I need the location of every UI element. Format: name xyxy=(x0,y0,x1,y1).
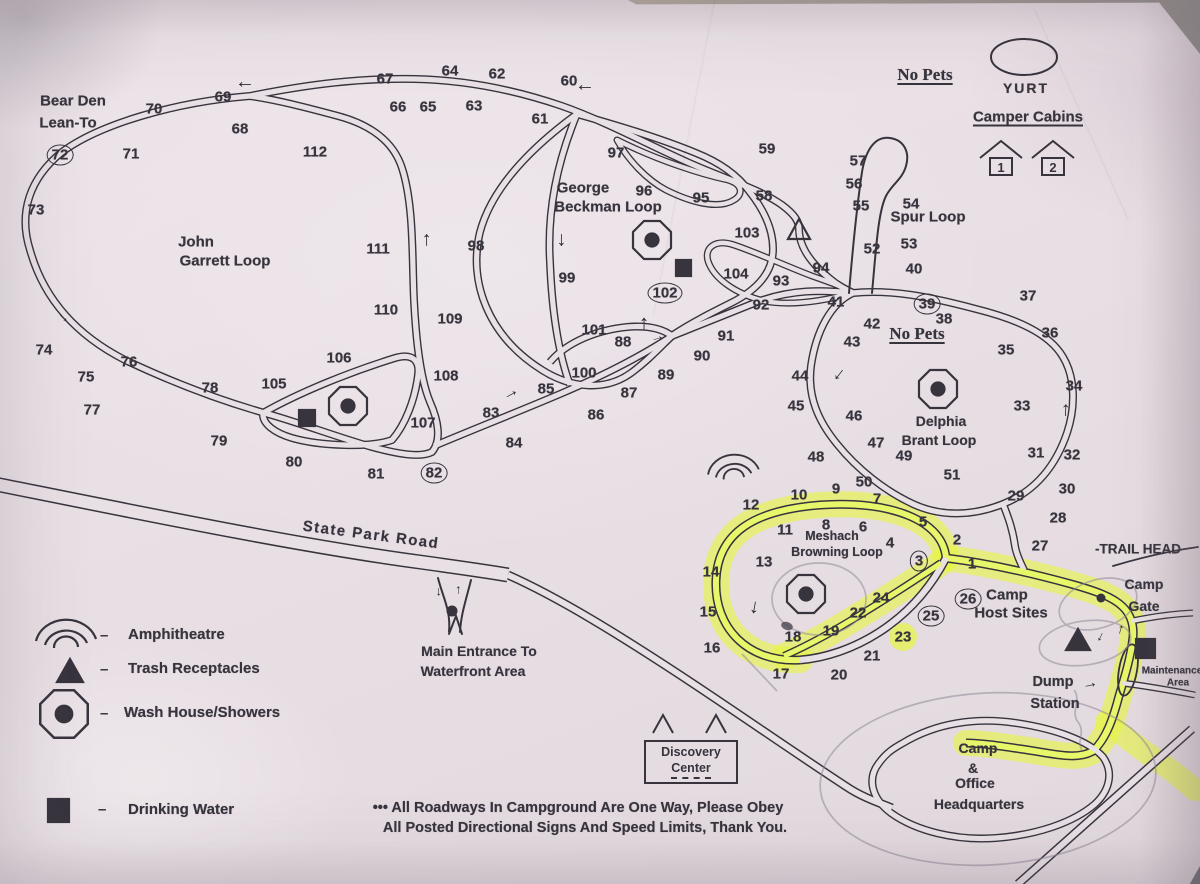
site-number: 7 xyxy=(873,491,881,508)
legend-dash: – xyxy=(100,661,108,678)
site-number: 81 xyxy=(368,466,385,483)
site-number: 40 xyxy=(906,261,923,278)
site-number: 76 xyxy=(121,354,138,371)
site-number: 63 xyxy=(466,98,483,115)
site-number: 2 xyxy=(953,532,961,549)
site-number: 86 xyxy=(588,407,605,424)
label-no-pets-north: No Pets xyxy=(897,65,952,85)
site-number: 34 xyxy=(1066,378,1083,395)
site-number: 46 xyxy=(846,408,863,425)
site-number: 62 xyxy=(489,66,506,83)
site-number: 45 xyxy=(788,398,805,415)
site-number-circled: 25 xyxy=(918,606,945,627)
site-number: 103 xyxy=(734,225,759,242)
site-number: 10 xyxy=(791,487,808,504)
site-number: 31 xyxy=(1028,445,1045,462)
site-number: 104 xyxy=(723,266,748,283)
direction-arrow: → xyxy=(745,596,768,619)
site-number: 53 xyxy=(901,236,918,253)
site-number: 68 xyxy=(232,121,249,138)
site-number: 21 xyxy=(864,648,881,665)
direction-arrow: → xyxy=(414,230,434,250)
site-number: 33 xyxy=(1014,398,1031,415)
site-number: 18 xyxy=(785,629,802,646)
site-number: 23 xyxy=(895,629,912,646)
site-number: 89 xyxy=(658,367,675,384)
legend-label-trash: Trash Receptacles xyxy=(128,660,260,677)
site-number-circled: 82 xyxy=(421,463,448,484)
site-number: 95 xyxy=(693,190,710,207)
site-number: 79 xyxy=(211,433,228,450)
direction-arrow: → xyxy=(1081,675,1100,694)
discovery-center-label-2: Center xyxy=(671,761,711,780)
label-john-garrett-2: Garrett Loop xyxy=(180,253,271,270)
site-number: 64 xyxy=(442,63,459,80)
site-number: 56 xyxy=(846,176,863,193)
site-number: 96 xyxy=(636,183,653,200)
label-trail-head: -TRAIL HEAD xyxy=(1095,542,1181,557)
label-bear-den-1: Bear Den xyxy=(40,93,106,110)
site-number: 19 xyxy=(823,623,840,640)
site-number: 4 xyxy=(886,535,894,552)
label-spur-loop: Spur Loop xyxy=(891,209,966,226)
site-number: 106 xyxy=(326,350,351,367)
site-number: 107 xyxy=(410,415,435,432)
site-number: 73 xyxy=(28,202,45,219)
legend-dash: – xyxy=(98,801,106,818)
label-yurt: YURT xyxy=(1003,80,1049,96)
site-number: 41 xyxy=(828,294,845,311)
direction-arrow: → xyxy=(554,230,574,250)
label-camp-gate-2: Gate xyxy=(1128,598,1159,614)
label-no-pets-delphia: No Pets xyxy=(889,324,944,344)
site-number: 6 xyxy=(859,519,867,536)
site-number: 88 xyxy=(615,334,632,351)
photo-background: 1 2 xyxy=(0,0,1200,884)
site-number: 59 xyxy=(759,141,776,158)
label-dump-1: Dump xyxy=(1032,674,1073,690)
site-number: 78 xyxy=(202,380,219,397)
site-number: 22 xyxy=(850,605,867,622)
label-george-beckman-1: George xyxy=(557,180,610,197)
direction-arrow: → xyxy=(648,327,665,344)
site-number: 90 xyxy=(694,348,711,365)
legend-label-wash-house: Wash House/Showers xyxy=(124,704,280,721)
direction-arrow: → xyxy=(828,363,855,390)
site-number: 105 xyxy=(261,376,286,393)
site-number: 52 xyxy=(864,241,881,258)
discovery-center: Discovery Center xyxy=(644,740,738,784)
site-number: 51 xyxy=(944,467,961,484)
direction-arrow: → xyxy=(1053,400,1074,421)
site-number: 29 xyxy=(1008,488,1025,505)
site-number: 49 xyxy=(896,448,913,465)
site-number: 110 xyxy=(374,302,398,319)
label-camp-host-2: Host Sites xyxy=(974,605,1047,622)
site-number: 91 xyxy=(718,328,735,345)
label-john-garrett-1: John xyxy=(178,234,214,251)
site-number: 1 xyxy=(968,556,976,573)
site-number: 35 xyxy=(998,342,1015,359)
direction-arrow: → xyxy=(575,80,595,100)
label-bear-den-2: Lean-To xyxy=(39,115,96,132)
label-state-park-road: State Park Road xyxy=(302,518,441,553)
label-main-entrance-2: Waterfront Area xyxy=(421,663,526,679)
site-number: 37 xyxy=(1020,288,1037,305)
direction-arrow: → xyxy=(55,306,75,326)
site-number: 30 xyxy=(1059,481,1076,498)
site-number: 55 xyxy=(853,198,870,215)
site-number-circled: 102 xyxy=(647,283,682,304)
label-hq-1: Camp xyxy=(959,740,998,756)
site-number: 24 xyxy=(873,590,890,607)
site-number: 28 xyxy=(1050,510,1067,527)
legend-label-amphitheatre: Amphitheatre xyxy=(128,626,225,643)
label-camp-gate-1: Camp xyxy=(1125,576,1164,592)
label-meshach-2: Browning Loop xyxy=(791,545,883,559)
site-number: 14 xyxy=(703,564,720,581)
site-number: 47 xyxy=(868,435,885,452)
site-number: 109 xyxy=(437,311,462,328)
site-number: 5 xyxy=(919,514,927,531)
site-number: 61 xyxy=(532,111,549,128)
site-number: 9 xyxy=(832,481,840,498)
label-delphia-2: Brant Loop xyxy=(902,432,977,448)
label-maintenance-2: Area xyxy=(1167,678,1189,689)
site-number: 92 xyxy=(753,297,770,314)
site-number: 15 xyxy=(700,604,717,621)
site-number: 57 xyxy=(850,153,867,170)
site-number: 20 xyxy=(831,667,848,684)
site-number: 85 xyxy=(538,381,555,398)
label-dump-2: Station xyxy=(1030,696,1079,712)
site-number: 58 xyxy=(756,188,773,205)
site-number: 101 xyxy=(581,322,606,339)
site-number: 69 xyxy=(215,89,232,106)
discovery-center-label-1: Discovery xyxy=(661,745,721,761)
site-number: 17 xyxy=(773,666,790,683)
direction-arrow: → xyxy=(499,381,522,404)
site-number: 75 xyxy=(78,369,95,386)
site-number: 27 xyxy=(1032,538,1049,555)
site-number: 66 xyxy=(390,99,407,116)
map-annotations: – – – – Amphitheatre Trash Receptacles W… xyxy=(0,0,1200,884)
site-number: 65 xyxy=(420,99,437,116)
site-number: 42 xyxy=(864,316,881,333)
site-number: 11 xyxy=(777,522,793,539)
site-number: 97 xyxy=(608,145,625,162)
site-number: 50 xyxy=(856,474,873,491)
direction-arrow: → xyxy=(450,584,463,597)
label-camper-cabins: Camper Cabins xyxy=(973,109,1083,126)
label-george-beckman-2: Beckman Loop xyxy=(554,199,662,216)
site-number: 48 xyxy=(808,449,825,466)
site-number: 13 xyxy=(756,554,773,571)
site-number: 43 xyxy=(844,334,861,351)
site-number: 83 xyxy=(483,405,500,422)
label-hq-2: & xyxy=(968,760,978,776)
site-number: 32 xyxy=(1064,447,1081,464)
site-number: 84 xyxy=(506,435,523,452)
site-number: 87 xyxy=(621,385,638,402)
site-number: 93 xyxy=(773,273,790,290)
label-hq-3: Office xyxy=(955,775,995,791)
label-camp-host-1: Camp xyxy=(986,587,1028,604)
label-note-1: ••• All Roadways In Campground Are One W… xyxy=(373,800,784,816)
direction-arrow: → xyxy=(435,586,448,599)
label-main-entrance-1: Main Entrance To xyxy=(421,643,537,659)
site-number: 71 xyxy=(123,146,140,163)
site-number-circled: 3 xyxy=(910,551,928,572)
site-number: 36 xyxy=(1042,325,1059,342)
site-number-circled: 72 xyxy=(47,145,74,166)
site-number: 67 xyxy=(377,71,394,88)
paper-map: 1 2 xyxy=(0,0,1200,884)
legend-label-drinking-water: Drinking Water xyxy=(128,801,234,818)
site-number: 99 xyxy=(559,270,576,287)
label-meshach-1: Meshach xyxy=(805,529,859,543)
site-number: 44 xyxy=(792,368,809,385)
site-number: 112 xyxy=(303,144,327,161)
direction-arrow: → xyxy=(235,77,255,97)
site-number: 94 xyxy=(813,260,830,277)
site-number: 98 xyxy=(468,238,485,255)
site-number: 108 xyxy=(433,368,458,385)
site-number: 16 xyxy=(704,640,721,657)
site-number: 77 xyxy=(84,402,101,419)
label-note-2: All Posted Directional Signs And Speed L… xyxy=(383,820,787,836)
site-number: 70 xyxy=(146,101,163,118)
legend-dash: – xyxy=(100,705,108,722)
site-number: 111 xyxy=(366,241,389,258)
site-number: 100 xyxy=(571,365,596,382)
legend-dash: – xyxy=(100,627,108,644)
site-number: 12 xyxy=(743,497,760,514)
site-number: 80 xyxy=(286,454,303,471)
label-delphia-1: Delphia xyxy=(916,413,967,429)
label-hq-4: Headquarters xyxy=(934,796,1024,812)
label-maintenance-1: Maintenance xyxy=(1142,666,1200,677)
site-number: 74 xyxy=(36,342,53,359)
